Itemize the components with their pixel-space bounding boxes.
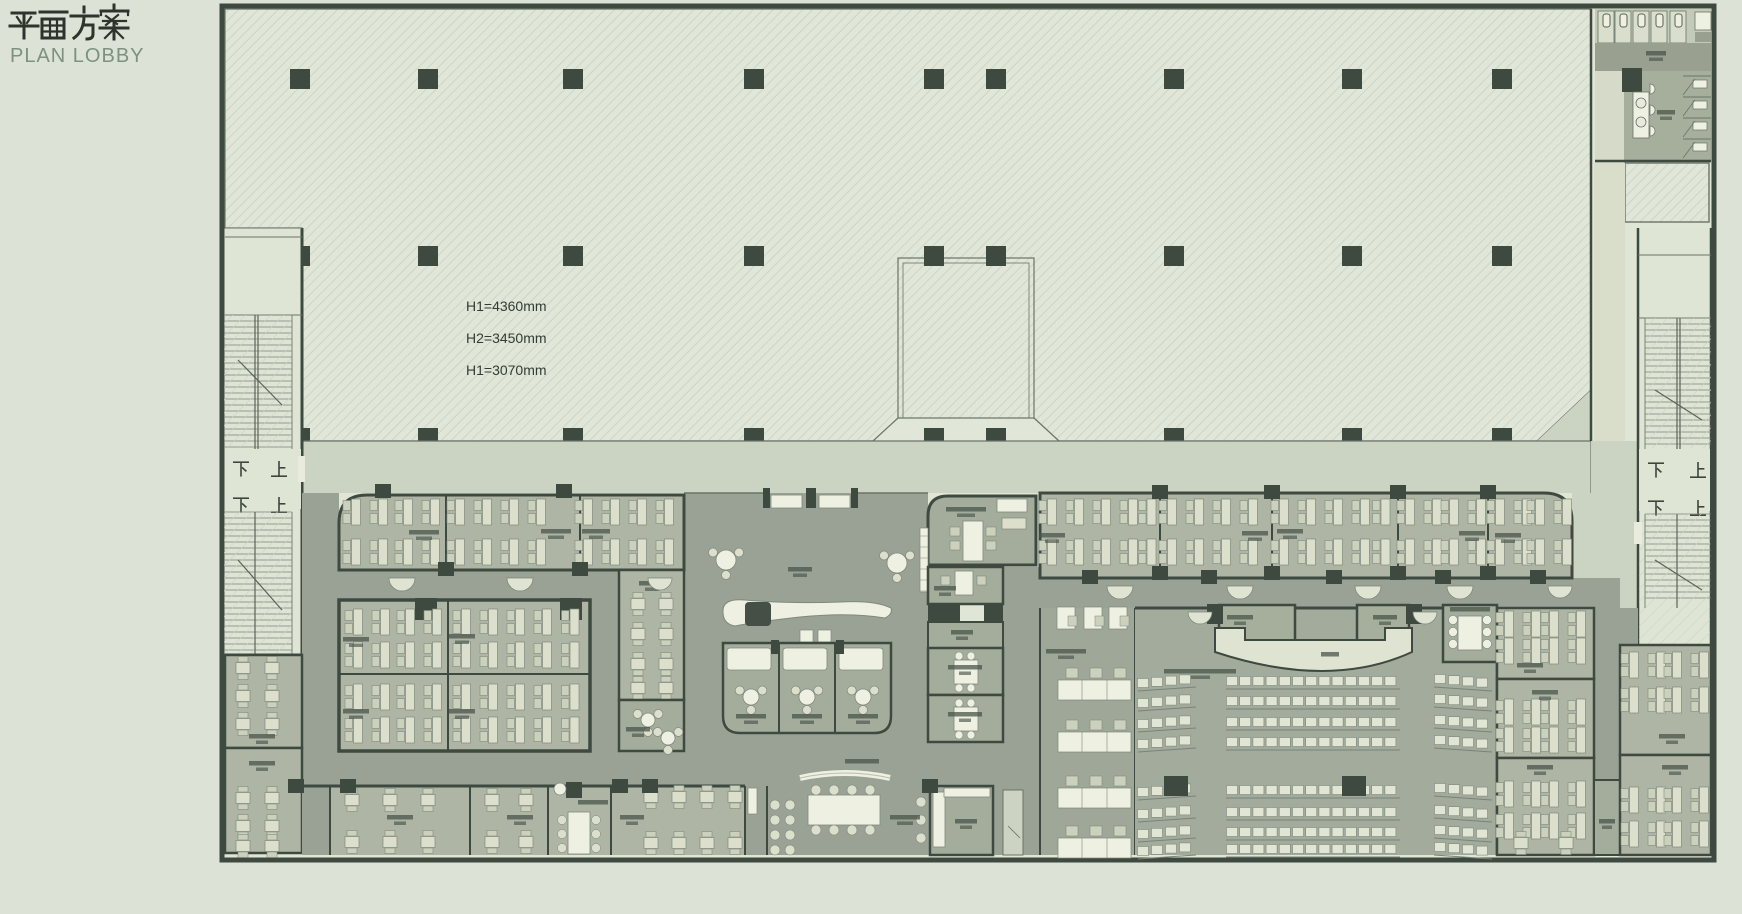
svg-text:H1=3070mm: H1=3070mm [466,362,547,378]
svg-text:H1=4360mm: H1=4360mm [466,298,547,314]
svg-text:PLAN LOBBY: PLAN LOBBY [10,45,145,67]
svg-text:H2=3450mm: H2=3450mm [466,330,547,346]
